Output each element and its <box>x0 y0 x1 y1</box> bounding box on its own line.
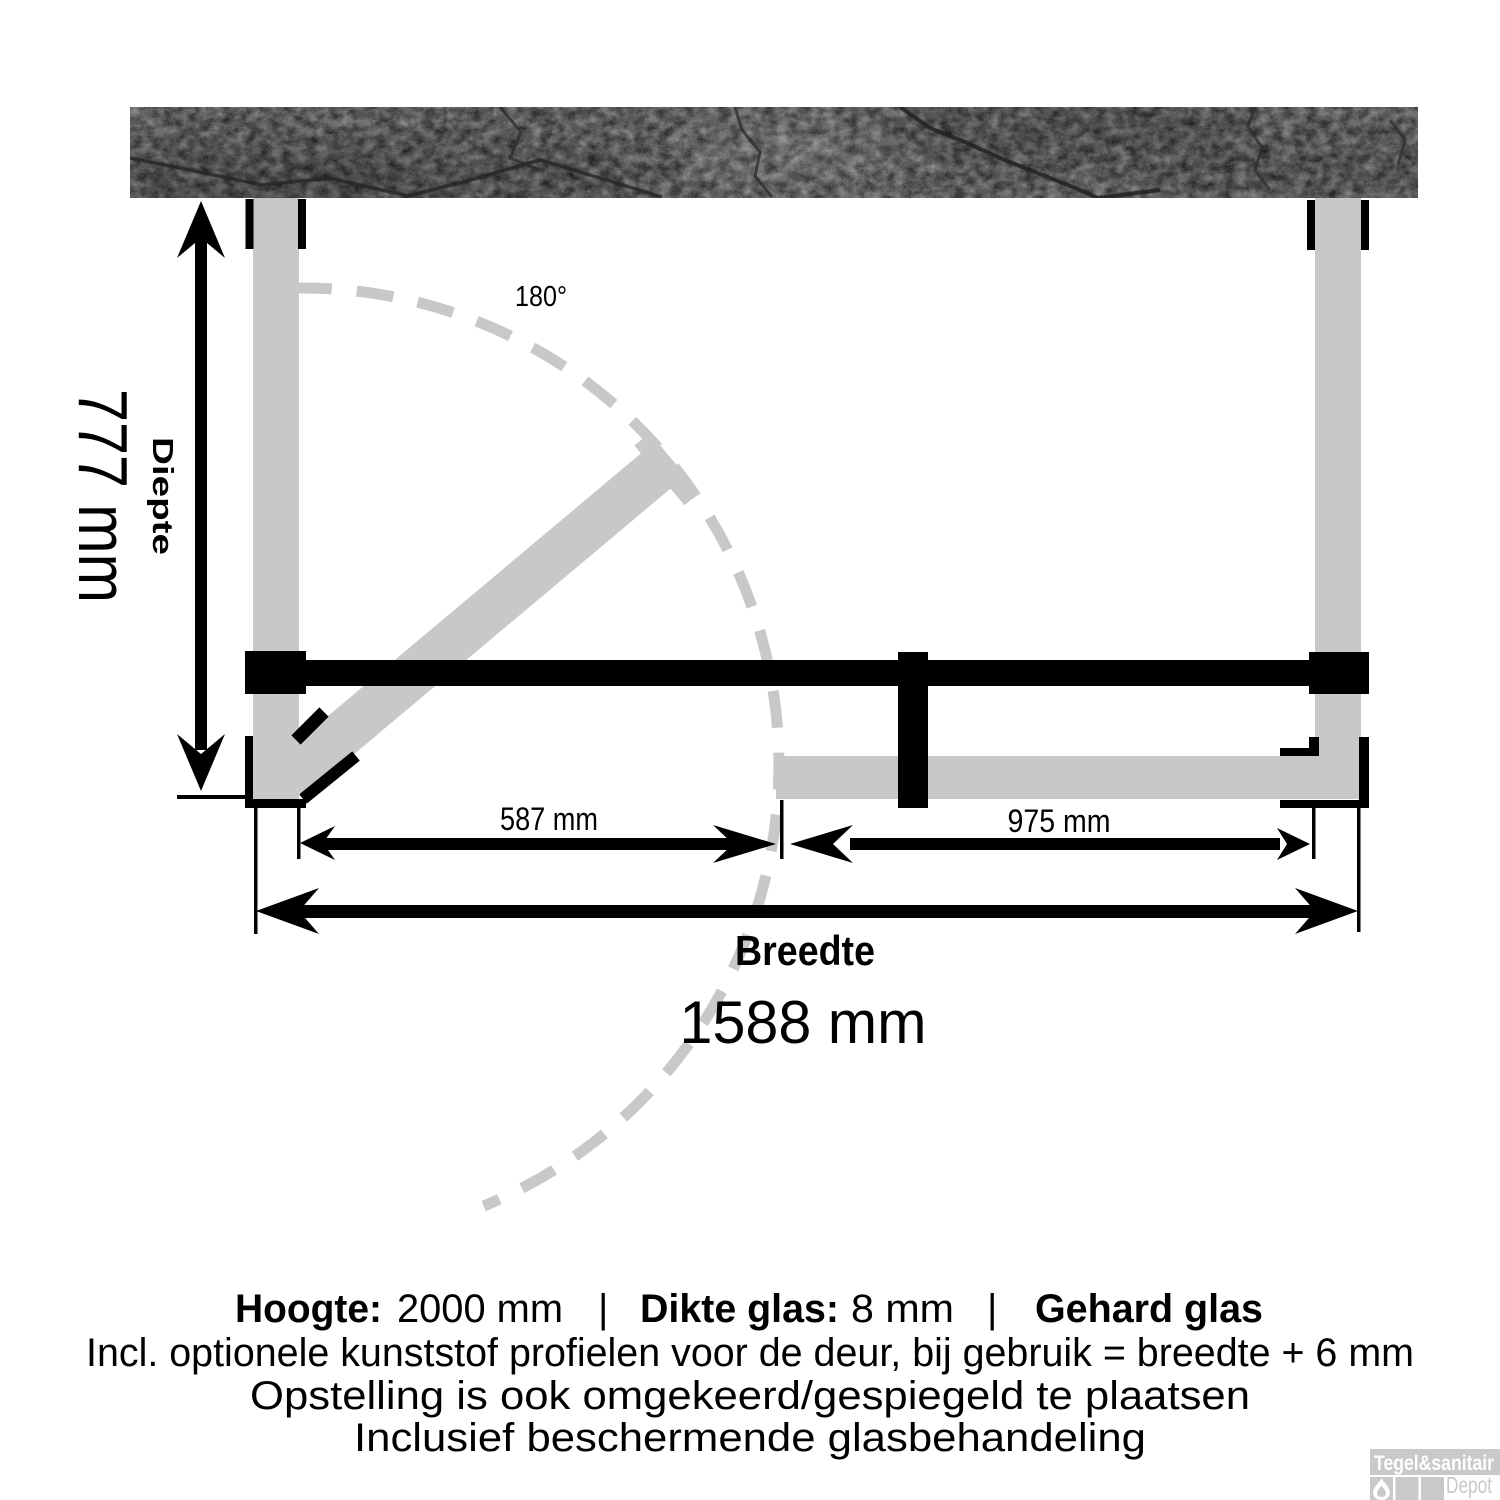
svg-text:8 mm: 8 mm <box>851 1287 954 1331</box>
svg-text:|: | <box>987 1287 997 1331</box>
svg-text:Diepte: Diepte <box>146 437 178 555</box>
svg-text:777 mm: 777 mm <box>64 389 142 603</box>
svg-text:Opstelling is ook omgekeerd/ge: Opstelling is ook omgekeerd/gespiegeld t… <box>250 1374 1250 1418</box>
svg-text:Hoogte:: Hoogte: <box>235 1287 382 1331</box>
svg-text:587 mm: 587 mm <box>500 801 598 837</box>
svg-text:975 mm: 975 mm <box>1008 803 1111 839</box>
svg-text:Incl. optionele kunststof prof: Incl. optionele kunststof profielen voor… <box>86 1331 1414 1375</box>
svg-text:1588 mm: 1588 mm <box>680 989 927 1056</box>
svg-text:Breedte: Breedte <box>735 927 875 974</box>
svg-text:|: | <box>598 1287 608 1331</box>
svg-text:Inclusief beschermende glasbeh: Inclusief beschermende glasbehandeling <box>354 1416 1146 1460</box>
svg-text:2000 mm: 2000 mm <box>397 1287 563 1331</box>
svg-text:180°: 180° <box>515 281 567 313</box>
svg-text:Depot: Depot <box>1446 1472 1492 1498</box>
svg-text:Dikte glas:: Dikte glas: <box>640 1287 839 1331</box>
svg-text:Gehard glas: Gehard glas <box>1035 1287 1263 1331</box>
